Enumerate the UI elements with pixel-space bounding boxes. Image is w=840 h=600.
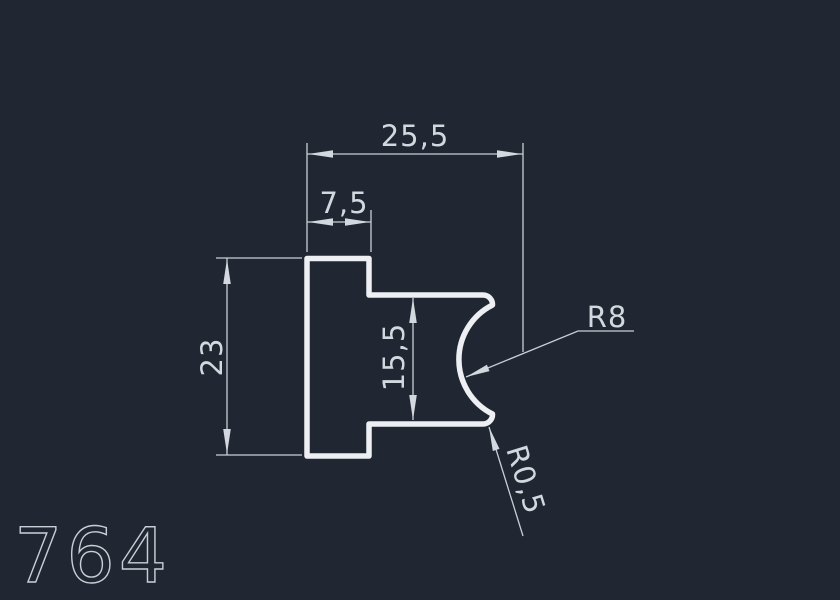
leader-large-radius: R8 — [466, 300, 634, 377]
radius-label: R8 — [587, 300, 628, 334]
cad-drawing-canvas: 25,5 7,5 23 15,5 — [0, 0, 840, 600]
leader-line — [466, 331, 634, 377]
arrowhead-left-icon — [308, 150, 333, 158]
arrowhead-bottom-icon — [223, 429, 231, 454]
arrowhead-bottom-icon — [409, 395, 417, 420]
arrowhead-top-icon — [409, 298, 417, 323]
dimension-value: 15,5 — [377, 323, 411, 392]
arrowhead-icon — [466, 365, 490, 377]
dimension-total-height: 23 — [195, 258, 302, 455]
dimension-value: 23 — [195, 338, 229, 377]
arrowhead-icon — [489, 427, 500, 451]
dimension-value: 25,5 — [381, 119, 450, 153]
radius-label: R0,5 — [499, 441, 552, 518]
dimension-tab-width: 7,5 — [307, 186, 371, 252]
leader-small-radius: R0,5 — [489, 427, 552, 536]
dimension-notch-height: 15,5 — [377, 298, 417, 420]
drawing-svg: 25,5 7,5 23 15,5 — [0, 0, 840, 600]
arrowhead-right-icon — [497, 150, 522, 158]
dimension-value: 7,5 — [319, 186, 368, 220]
arrowhead-top-icon — [223, 259, 231, 284]
profile-number: 764 — [14, 511, 171, 600]
